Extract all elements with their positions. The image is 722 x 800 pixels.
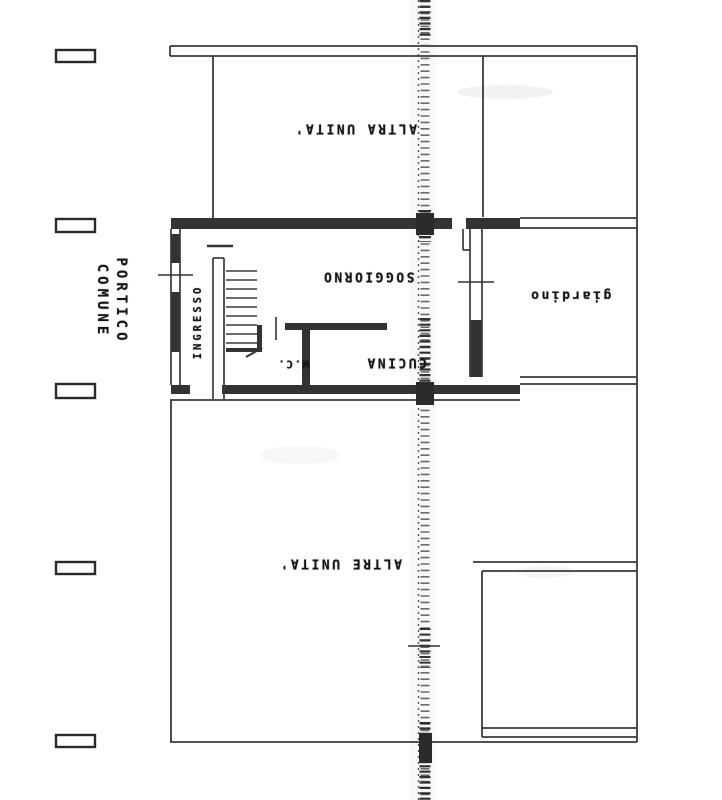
apartment-wall-edges <box>170 229 520 400</box>
floor-plan-page: ALTRA UNITA' SOGGIORNO CUCINA W.C. INGRE… <box>0 0 722 800</box>
staircase <box>226 271 262 357</box>
label-wc: W.C. <box>277 358 310 371</box>
label-portico-line1: PORTICO <box>111 257 130 344</box>
opening-ticks <box>158 246 494 646</box>
label-altra-unita: ALTRA UNITA' <box>293 121 417 136</box>
label-portico-comune: PORTICO COMUNE <box>92 257 130 344</box>
label-soggiorno: SOGGIORNO <box>322 269 415 284</box>
bottom-right-room-walls <box>473 562 637 737</box>
label-portico-line2: COMUNE <box>92 257 111 344</box>
label-altre-unita: ALTRE UNITA' <box>278 556 402 571</box>
label-ingresso: INGRESSO <box>192 285 204 360</box>
label-cucina: CUCINA <box>365 355 427 370</box>
label-giardino: giardino <box>529 288 612 303</box>
portico-columns <box>56 50 95 747</box>
